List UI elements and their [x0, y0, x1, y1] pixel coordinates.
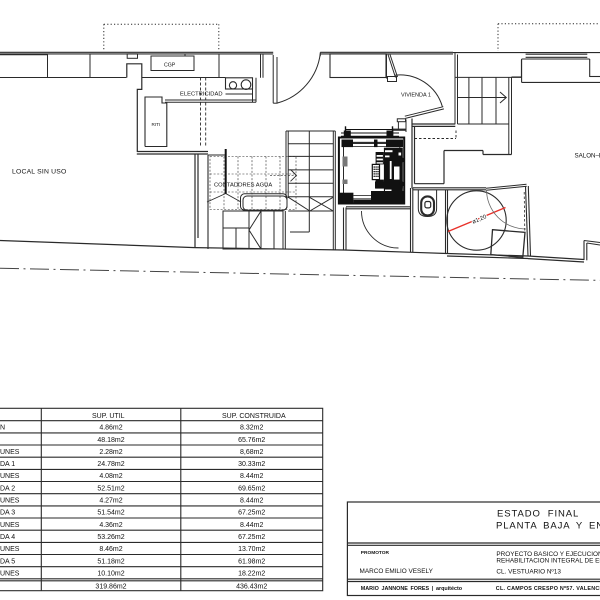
svg-text:18.22m2: 18.22m2 — [238, 571, 265, 578]
svg-text:53.26m2: 53.26m2 — [97, 534, 124, 541]
svg-text:MARIO JANNONE FORES | arquitéc: MARIO JANNONE FORES | arquitécto — [361, 586, 463, 592]
svg-text:PROMOTOR: PROMOTOR — [361, 550, 390, 556]
svg-text:52.51m2: 52.51m2 — [97, 485, 124, 492]
svg-text:PLANTA BAJA Y ENTREPL: PLANTA BAJA Y ENTREPL — [496, 521, 600, 532]
svg-text:DA 1: DA 1 — [0, 461, 15, 468]
svg-text:8.32m2: 8.32m2 — [240, 425, 263, 432]
svg-text:24.78m2: 24.78m2 — [97, 461, 124, 468]
svg-text:30.33m2: 30.33m2 — [238, 461, 265, 468]
svg-text:4.08m2: 4.08m2 — [99, 473, 122, 480]
svg-text:LOCAL SIN USO: LOCAL SIN USO — [12, 169, 66, 176]
svg-text:DA 5: DA 5 — [0, 558, 15, 565]
svg-text:UNES: UNES — [0, 473, 20, 480]
svg-text:ESTADO FINAL: ESTADO FINAL — [497, 509, 579, 520]
svg-text:67.25m2: 67.25m2 — [238, 534, 265, 541]
svg-text:436.43m2: 436.43m2 — [236, 584, 267, 591]
svg-text:RITI: RITI — [152, 122, 161, 127]
svg-text:ELECTRICIDAD: ELECTRICIDAD — [180, 91, 223, 97]
svg-text:UNES: UNES — [0, 546, 20, 553]
svg-text:8.44m2: 8.44m2 — [240, 522, 263, 529]
svg-text:CL. CAMPOS CRESPO Nº57. VALENC: CL. CAMPOS CRESPO Nº57. VALENCIA — [496, 586, 600, 592]
svg-text:REHABILITACION INTEGRAL DE EDI: REHABILITACION INTEGRAL DE EDIFICIO — [496, 558, 600, 565]
svg-text:69.65m2: 69.65m2 — [238, 485, 265, 492]
svg-text:8,68m2: 8,68m2 — [240, 449, 263, 456]
svg-text:MARCO EMILIO VESELY: MARCO EMILIO VESELY — [360, 568, 434, 575]
svg-text:CL. VESTUARIO Nº13: CL. VESTUARIO Nº13 — [496, 568, 561, 575]
svg-text:N: N — [0, 425, 5, 432]
svg-text:10.10m2: 10.10m2 — [97, 571, 124, 578]
svg-text:CGP: CGP — [164, 63, 176, 69]
svg-text:319.86m2: 319.86m2 — [95, 584, 126, 591]
svg-text:67.25m2: 67.25m2 — [238, 510, 265, 517]
svg-text:DA 4: DA 4 — [0, 534, 15, 541]
svg-text:65.76m2: 65.76m2 — [238, 437, 265, 444]
svg-text:13.70m2: 13.70m2 — [238, 546, 265, 553]
svg-text:8.46m2: 8.46m2 — [99, 546, 122, 553]
svg-text:UNES: UNES — [0, 522, 20, 529]
svg-text:DA 2: DA 2 — [0, 485, 15, 492]
svg-text:8.44m2: 8.44m2 — [240, 473, 263, 480]
svg-text:51.18m2: 51.18m2 — [97, 558, 124, 565]
svg-text:DA 3: DA 3 — [0, 510, 15, 517]
svg-text:UNES: UNES — [0, 449, 20, 456]
svg-text:51.54m2: 51.54m2 — [97, 510, 124, 517]
svg-text:4.86m2: 4.86m2 — [99, 425, 122, 432]
svg-text:CONTADORES AGUA: CONTADORES AGUA — [214, 183, 272, 189]
svg-text:SALON–EST: SALON–EST — [575, 152, 600, 159]
svg-text:SUP. UTIL: SUP. UTIL — [92, 413, 125, 420]
svg-text:61.98m2: 61.98m2 — [238, 558, 265, 565]
svg-text:48.18m2: 48.18m2 — [97, 437, 124, 444]
svg-text:8.44m2: 8.44m2 — [240, 498, 263, 505]
svg-text:UNES: UNES — [0, 571, 20, 578]
svg-text:2.28m2: 2.28m2 — [99, 449, 122, 456]
svg-text:UNES: UNES — [0, 498, 20, 505]
svg-text:4.36m2: 4.36m2 — [99, 522, 122, 529]
svg-text:SUP. CONSTRUIDA: SUP. CONSTRUIDA — [222, 413, 286, 420]
svg-text:VIVIENDA 1: VIVIENDA 1 — [401, 93, 431, 99]
svg-text:4.27m2: 4.27m2 — [99, 498, 122, 505]
